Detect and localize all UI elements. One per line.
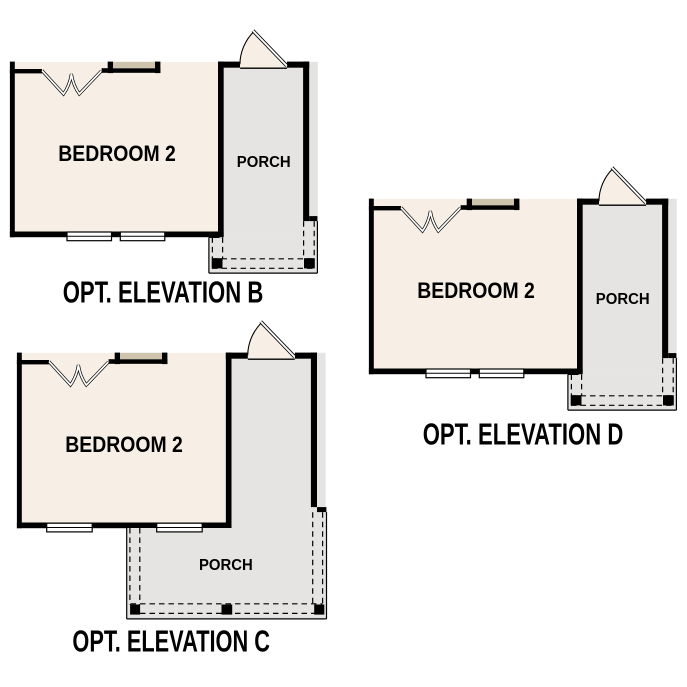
svg-text:PORCH: PORCH [237, 154, 291, 171]
svg-text:BEDROOM 2: BEDROOM 2 [58, 141, 176, 166]
svg-text:PORCH: PORCH [596, 291, 650, 308]
svg-text:OPT. ELEVATION B: OPT. ELEVATION B [63, 275, 264, 310]
svg-text:OPT. ELEVATION D: OPT. ELEVATION D [423, 417, 624, 452]
svg-text:OPT. ELEVATION C: OPT. ELEVATION C [72, 623, 270, 658]
svg-text:PORCH: PORCH [199, 557, 253, 574]
svg-text:BEDROOM 2: BEDROOM 2 [65, 432, 183, 457]
svg-text:BEDROOM 2: BEDROOM 2 [417, 278, 535, 303]
